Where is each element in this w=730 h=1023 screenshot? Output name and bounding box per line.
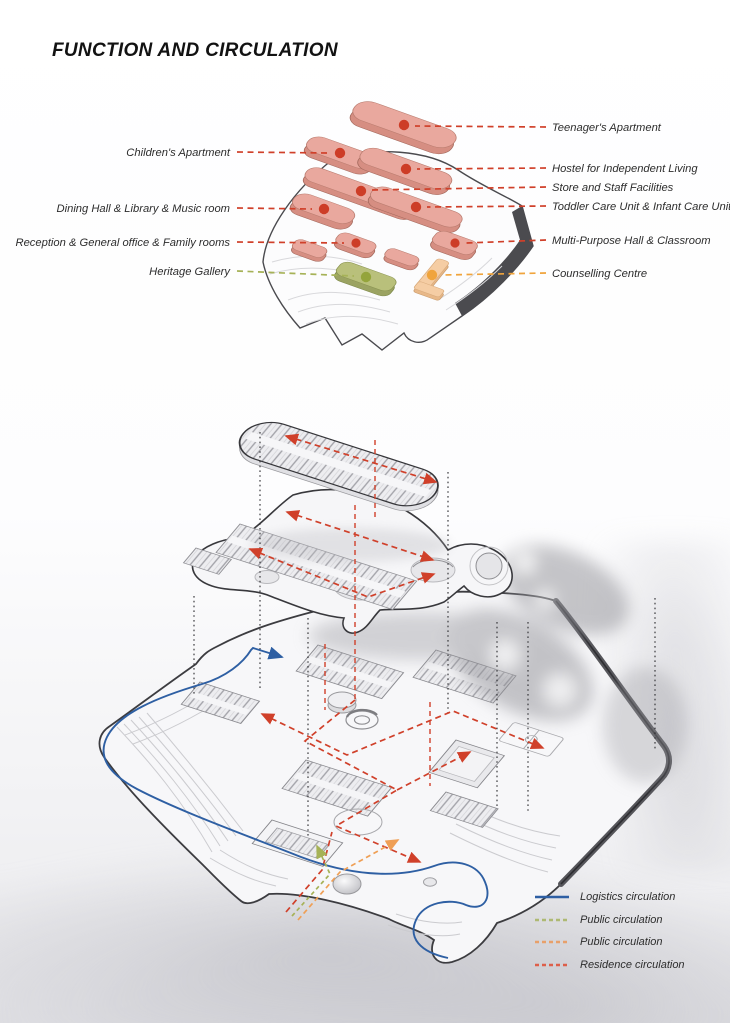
exploded-axonometric-drawing: Children's Apartment Dining Hall & Libra… — [0, 0, 730, 1023]
leader-dot — [399, 120, 409, 130]
legend: Logistics circulation Public circulation… — [534, 886, 685, 976]
leader-dot — [427, 270, 437, 280]
legend-swatch-solid-line — [534, 893, 570, 901]
leader-dot — [351, 238, 360, 247]
leader-dot — [335, 148, 345, 158]
legend-label: Public circulation — [580, 914, 663, 926]
label-teenager-apartment: Teenager's Apartment — [552, 122, 662, 134]
legend-label: Logistics circulation — [580, 891, 675, 903]
leader-line — [237, 208, 312, 209]
leader-dot — [411, 202, 421, 212]
label-hostel: Hostel for Independent Living — [552, 163, 698, 175]
cylinder-building — [328, 692, 356, 708]
legend-swatch-dashed-line — [534, 938, 570, 946]
legend-item-public-green: Public circulation — [534, 909, 685, 932]
lower-exploded-diagram — [99, 416, 687, 963]
label-childrens-apartment: Children's Apartment — [126, 147, 231, 159]
leader-dot — [450, 238, 459, 247]
leader-dot — [361, 272, 371, 282]
dome-structure — [333, 874, 361, 894]
leader-dot — [401, 164, 411, 174]
label-heritage-gallery: Heritage Gallery — [149, 266, 231, 278]
diagram-page: FUNCTION AND CIRCULATION — [0, 0, 730, 1023]
legend-item-residence: Residence circulation — [534, 954, 685, 977]
label-counselling-centre: Counselling Centre — [552, 268, 647, 280]
label-store-staff: Store and Staff Facilities — [552, 182, 674, 194]
leader-line — [237, 152, 328, 153]
label-multi-purpose: Multi-Purpose Hall & Classroom — [552, 235, 711, 247]
label-toddler-care: Toddler Care Unit & Infant Care Unit — [552, 201, 730, 213]
leader-dot — [356, 186, 366, 196]
courtyard-hole — [255, 571, 279, 584]
legend-swatch-dashed-line — [534, 961, 570, 969]
label-dining-hall: Dining Hall & Library & Music room — [57, 203, 230, 215]
legend-item-public-orange: Public circulation — [534, 931, 685, 954]
upper-roof-diagram: Children's Apartment Dining Hall & Libra… — [15, 98, 730, 350]
small-pavilion — [424, 878, 437, 886]
label-reception: Reception & General office & Family room… — [15, 237, 230, 249]
upper-plate-shadow — [250, 528, 450, 562]
leader-dot — [319, 204, 329, 214]
legend-swatch-dashed-line — [534, 916, 570, 924]
legend-label: Residence circulation — [580, 959, 685, 971]
legend-item-logistics: Logistics circulation — [534, 886, 685, 909]
leader-line — [417, 168, 546, 169]
legend-label: Public circulation — [580, 936, 663, 948]
